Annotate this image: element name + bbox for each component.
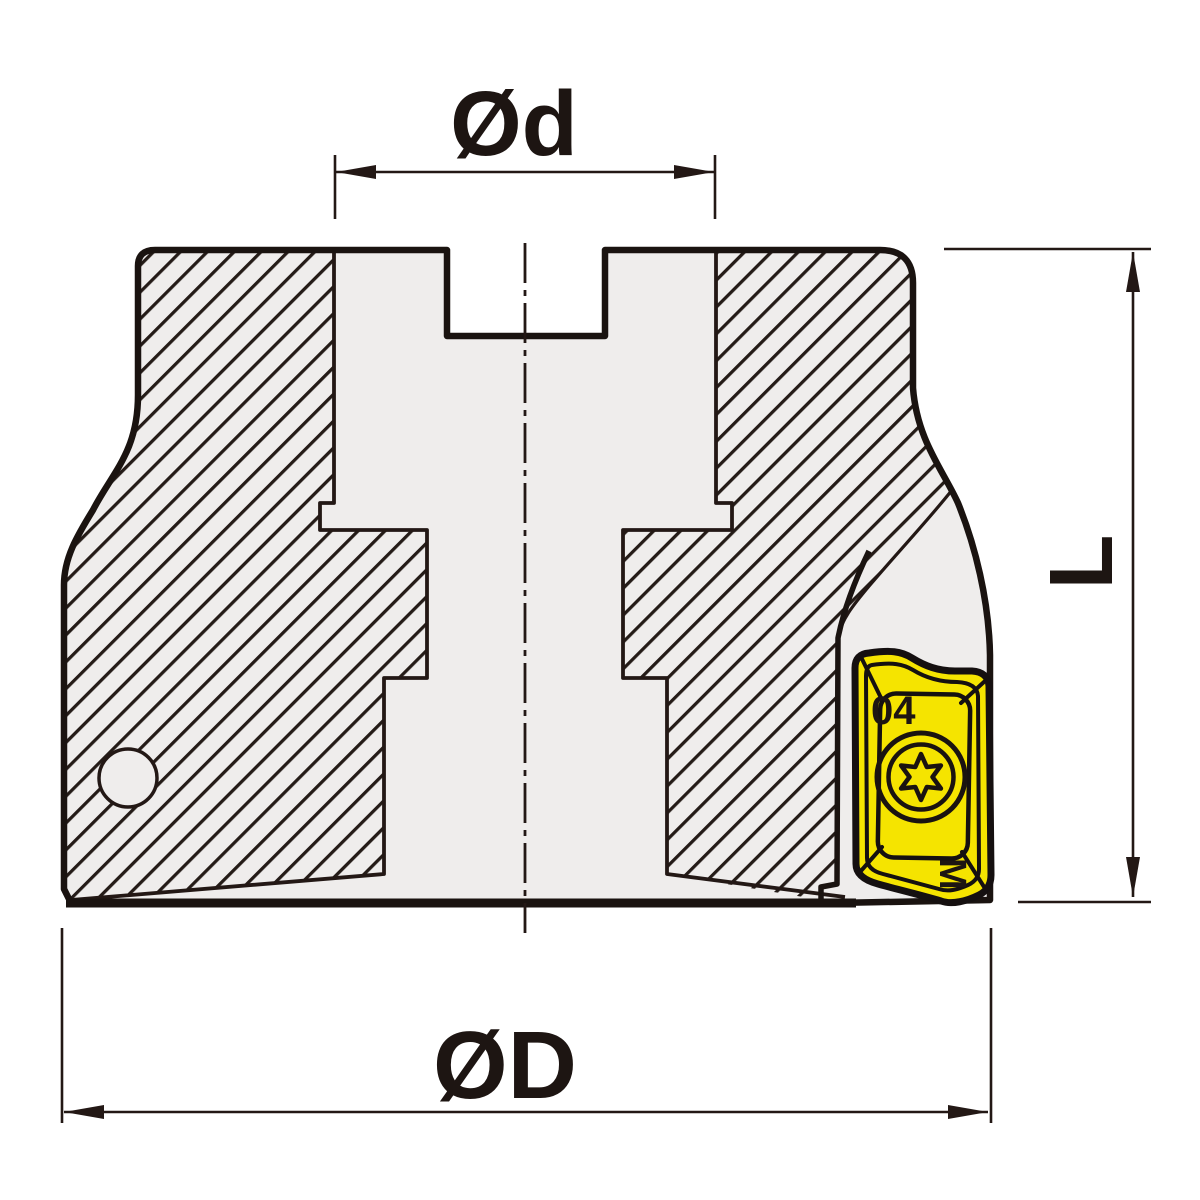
arrowhead-left <box>336 165 376 179</box>
drawing-canvas: 04 M Ød ØD L <box>0 0 1200 1200</box>
balance-hole <box>99 749 157 807</box>
arrowhead-left <box>64 1105 104 1119</box>
label-outer-diameter: ØD <box>433 1012 577 1119</box>
insert-marking-04: 04 <box>871 689 916 733</box>
arrowhead-top <box>1126 252 1140 292</box>
milling-cutter-technical-drawing: 04 M Ød ØD L <box>0 0 1200 1200</box>
carbide-insert: 04 M <box>855 651 991 902</box>
label-top-diameter: Ød <box>450 73 578 175</box>
arrowhead-bottom <box>1126 857 1140 897</box>
label-height: L <box>1032 535 1132 590</box>
insert-marking-m: M <box>931 858 973 890</box>
arrowhead-right <box>948 1105 988 1119</box>
arrowhead-right <box>674 165 714 179</box>
